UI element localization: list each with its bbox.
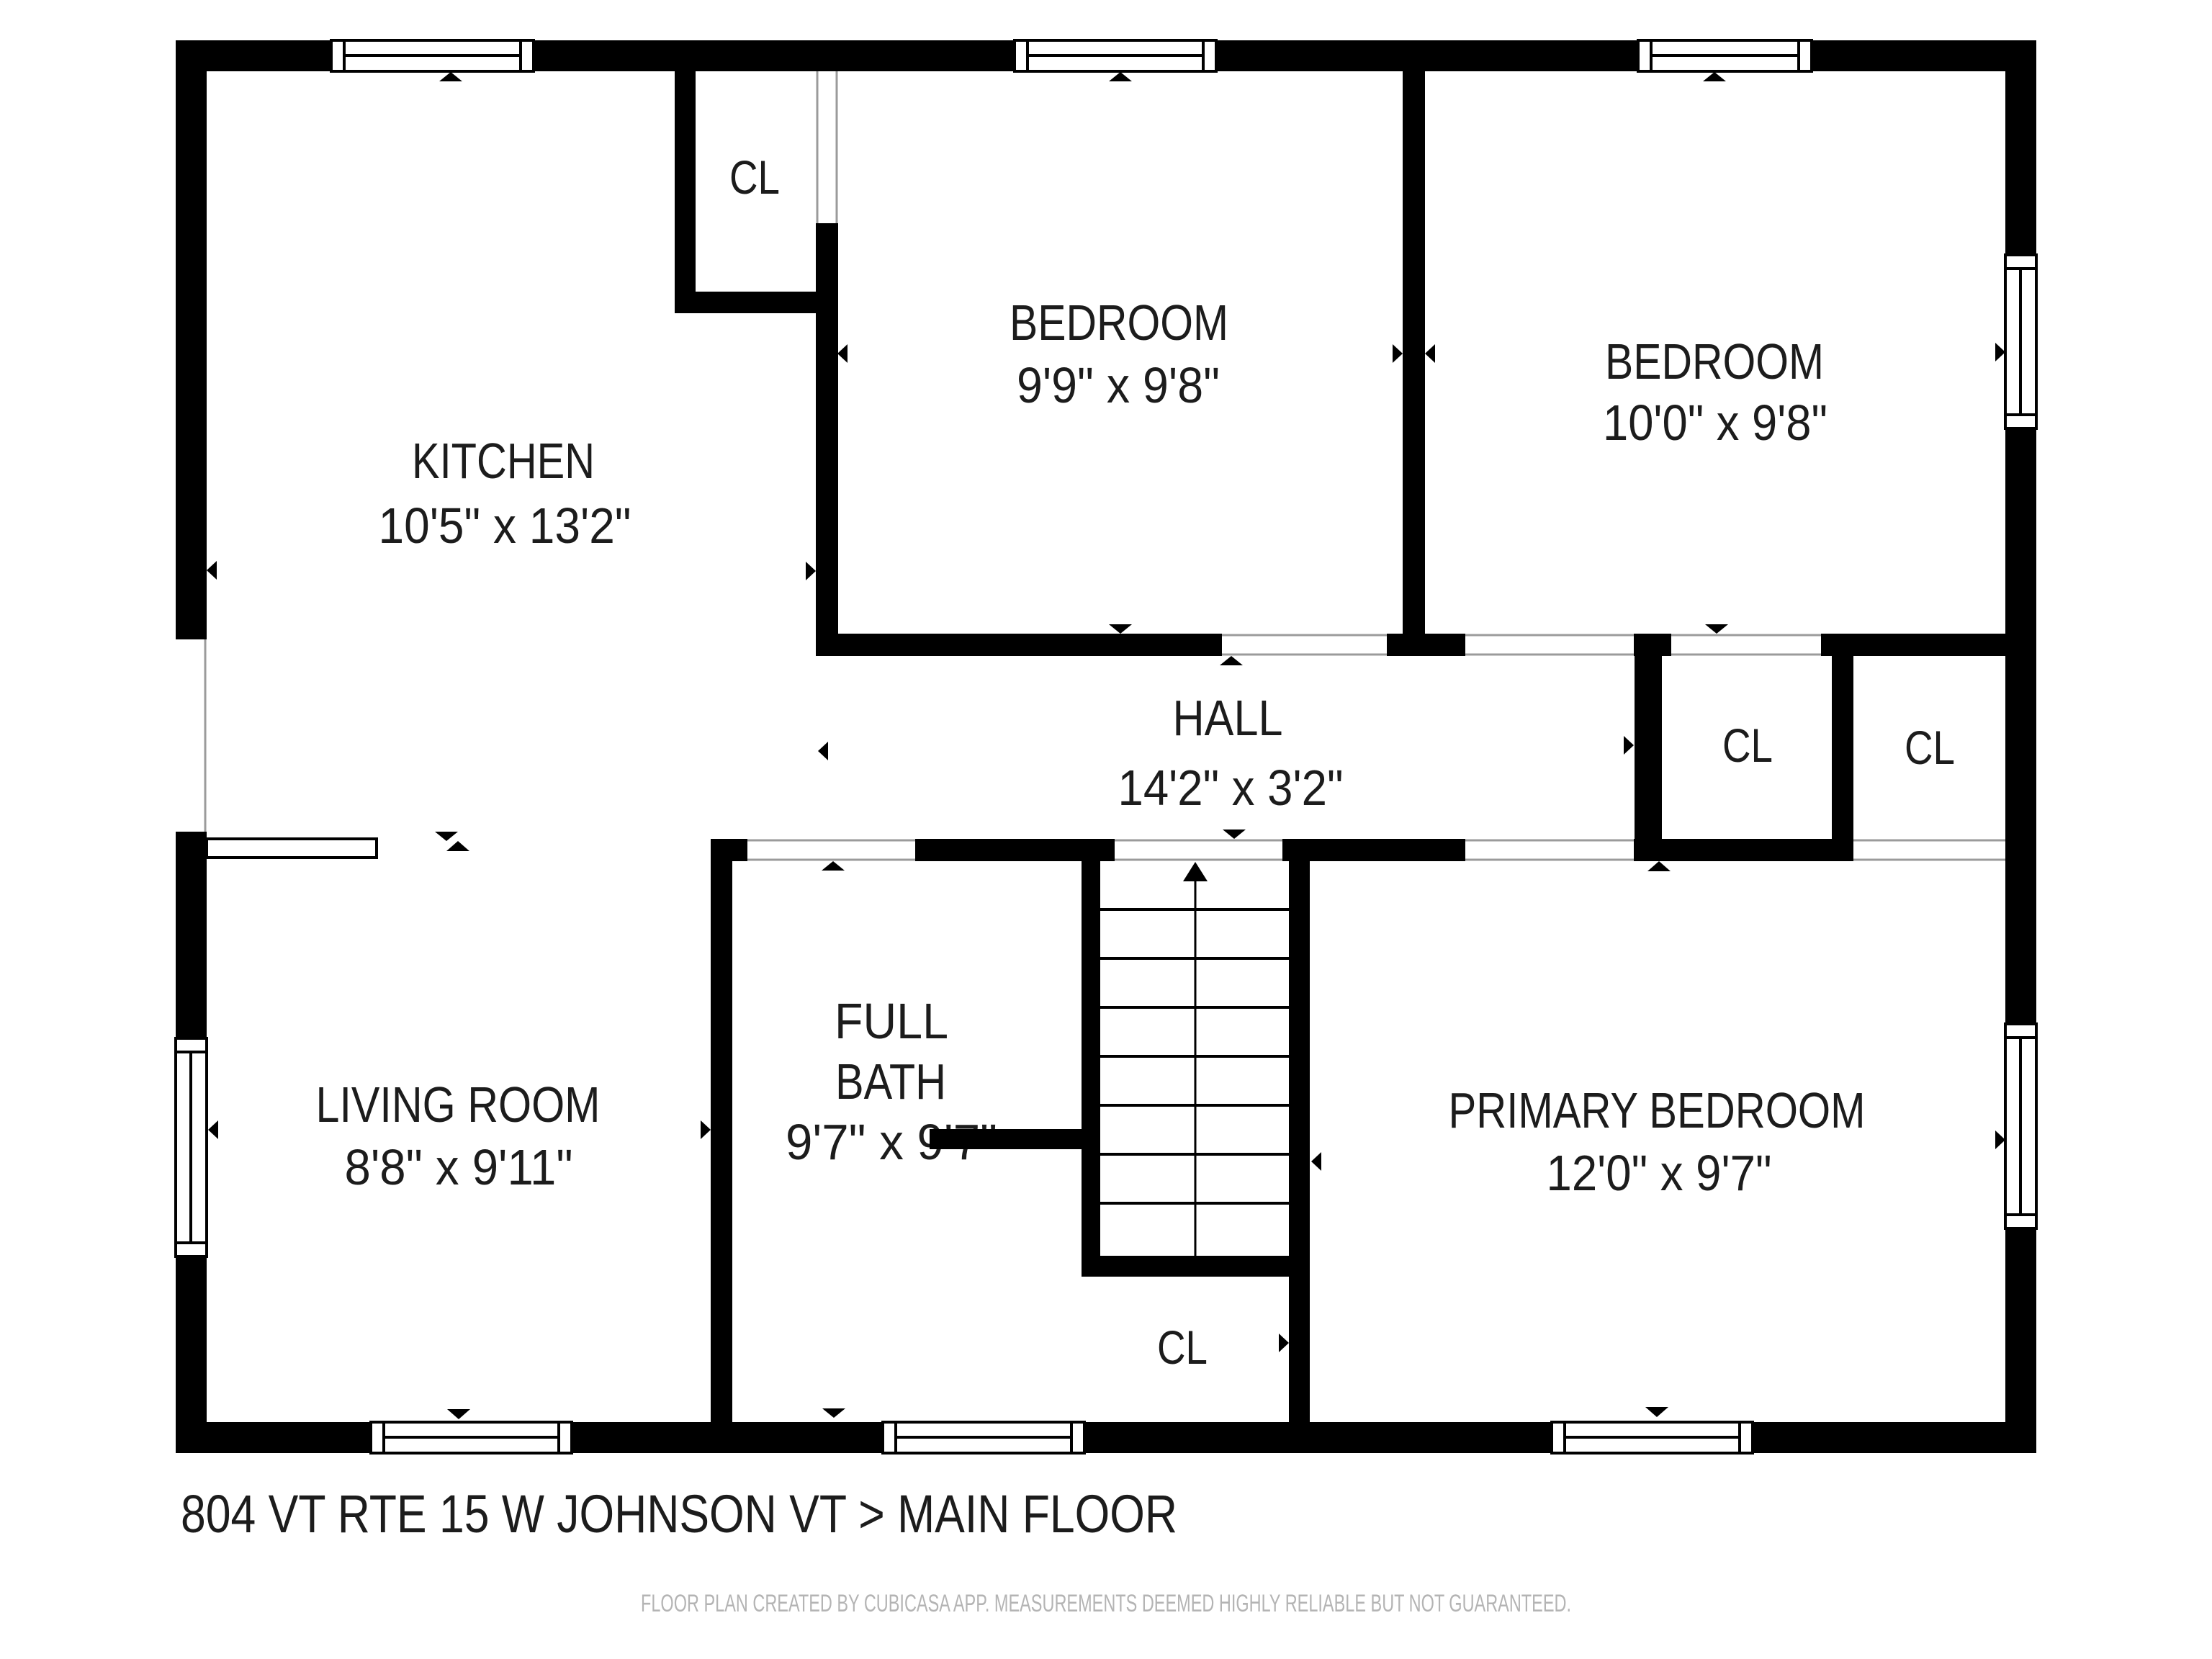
svg-text:14'2" x 3'2": 14'2" x 3'2" bbox=[1118, 760, 1344, 816]
svg-text:PRIMARY BEDROOM: PRIMARY BEDROOM bbox=[1449, 1082, 1866, 1138]
svg-text:10'0" x 9'8": 10'0" x 9'8" bbox=[1603, 395, 1827, 451]
svg-text:BATH: BATH bbox=[835, 1053, 946, 1110]
svg-text:KITCHEN: KITCHEN bbox=[412, 433, 595, 489]
svg-text:BEDROOM: BEDROOM bbox=[1010, 295, 1228, 351]
svg-text:CL: CL bbox=[1157, 1321, 1208, 1374]
svg-text:804 VT RTE 15 W JOHNSON VT > M: 804 VT RTE 15 W JOHNSON VT > MAIN FLOOR bbox=[181, 1484, 1177, 1544]
svg-text:FLOOR PLAN CREATED BY CUBICASA: FLOOR PLAN CREATED BY CUBICASA APP. MEAS… bbox=[641, 1590, 1571, 1617]
svg-text:9'9" x 9'8": 9'9" x 9'8" bbox=[1017, 357, 1220, 413]
svg-text:8'8" x 9'11": 8'8" x 9'11" bbox=[345, 1139, 573, 1195]
svg-text:CL: CL bbox=[729, 150, 780, 204]
svg-text:10'5" x 13'2": 10'5" x 13'2" bbox=[379, 498, 631, 554]
svg-text:CL: CL bbox=[1905, 721, 1955, 774]
svg-text:HALL: HALL bbox=[1173, 690, 1283, 746]
svg-text:12'0" x 9'7": 12'0" x 9'7" bbox=[1547, 1145, 1772, 1201]
svg-text:BEDROOM: BEDROOM bbox=[1605, 333, 1824, 390]
svg-text:FULL: FULL bbox=[835, 993, 948, 1049]
svg-text:CL: CL bbox=[1722, 719, 1773, 772]
svg-text:LIVING ROOM: LIVING ROOM bbox=[316, 1076, 601, 1133]
